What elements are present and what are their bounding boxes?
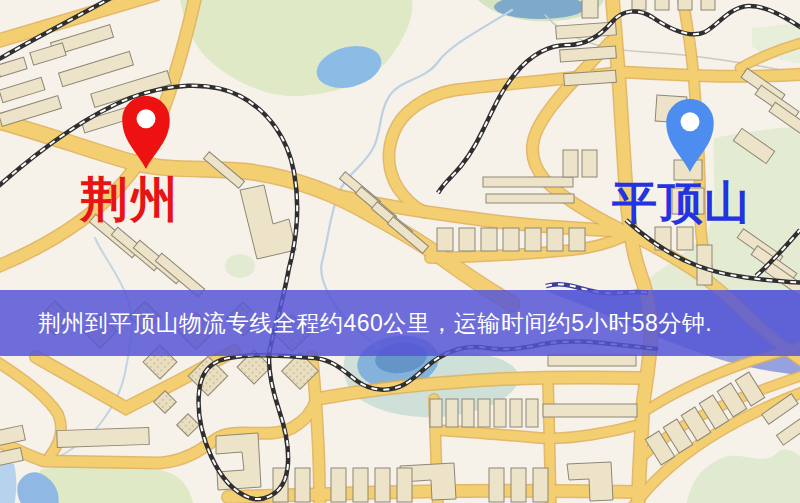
logistics-route-map: 荆州 平顶山 荆州到平顶山物流专线全程约460公里，运输时间约5小时58分钟. bbox=[0, 0, 800, 503]
destination-pin-hole bbox=[681, 112, 700, 131]
origin-pin-hole bbox=[137, 109, 156, 128]
origin-city-label: 荆州 bbox=[80, 176, 180, 224]
destination-pin-icon bbox=[661, 97, 719, 173]
origin-pin-icon bbox=[117, 94, 175, 170]
destination-pin-shape bbox=[666, 99, 714, 172]
origin-pin-shape bbox=[122, 96, 170, 169]
map-background bbox=[0, 0, 800, 503]
route-info-banner: 荆州到平顶山物流专线全程约460公里，运输时间约5小时58分钟. bbox=[0, 290, 800, 356]
destination-city-label: 平顶山 bbox=[612, 180, 750, 225]
route-info-text: 荆州到平顶山物流专线全程约460公里，运输时间约5小时58分钟. bbox=[0, 308, 712, 339]
